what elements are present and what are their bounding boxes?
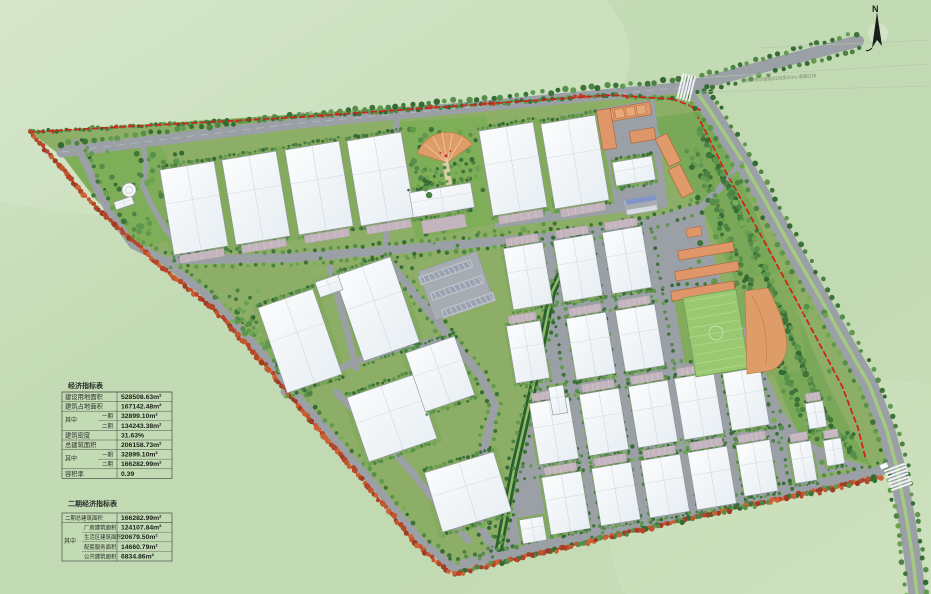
svg-text:其中: 其中 xyxy=(64,537,76,545)
svg-text:其中: 其中 xyxy=(65,455,77,463)
svg-text:6834.86m²: 6834.86m² xyxy=(121,553,155,560)
svg-text:容积率: 容积率 xyxy=(65,469,84,478)
svg-text:166282.99m²: 166282.99m² xyxy=(121,515,162,522)
svg-text:总建筑面积: 总建筑面积 xyxy=(65,440,97,449)
svg-text:其中: 其中 xyxy=(65,416,77,424)
svg-text:二期: 二期 xyxy=(102,461,114,468)
svg-text:20679.50m²: 20679.50m² xyxy=(121,534,158,541)
svg-text:经济指标表: 经济指标表 xyxy=(68,381,104,390)
svg-text:建筑占地面积: 建筑占地面积 xyxy=(65,402,103,411)
svg-text:一期: 一期 xyxy=(102,452,114,459)
svg-text:206158.73m²: 206158.73m² xyxy=(121,442,162,449)
svg-text:二期总建筑面积: 二期总建筑面积 xyxy=(65,514,103,522)
svg-text:31.63%: 31.63% xyxy=(121,432,144,439)
svg-text:厂房建筑面积: 厂房建筑面积 xyxy=(84,524,117,532)
svg-text:528508.63m²: 528508.63m² xyxy=(121,394,162,401)
svg-text:14660.79m²: 14660.79m² xyxy=(121,544,158,551)
svg-text:32899.10m²: 32899.10m² xyxy=(121,413,158,420)
svg-text:167142.48m²: 167142.48m² xyxy=(121,404,162,411)
svg-text:0.39: 0.39 xyxy=(121,471,134,478)
svg-text:二期: 二期 xyxy=(102,423,114,430)
svg-text:二期经济指标表: 二期经济指标表 xyxy=(68,499,118,508)
svg-text:N: N xyxy=(872,4,879,14)
svg-text:配套服务面积: 配套服务面积 xyxy=(84,543,117,551)
svg-text:建设用地面积: 建设用地面积 xyxy=(65,392,103,401)
svg-text:建筑密度: 建筑密度 xyxy=(65,430,91,439)
svg-text:134243.38m²: 134243.38m² xyxy=(121,423,162,430)
svg-text:32899.10m²: 32899.10m² xyxy=(121,452,158,459)
svg-text:一期: 一期 xyxy=(102,413,114,420)
svg-text:124107.84m²: 124107.84m² xyxy=(121,525,162,532)
svg-text:生活区建筑面积: 生活区建筑面积 xyxy=(84,533,122,541)
svg-text:公共建筑面积: 公共建筑面积 xyxy=(84,552,117,560)
svg-text:166282.99m²: 166282.99m² xyxy=(121,461,162,468)
